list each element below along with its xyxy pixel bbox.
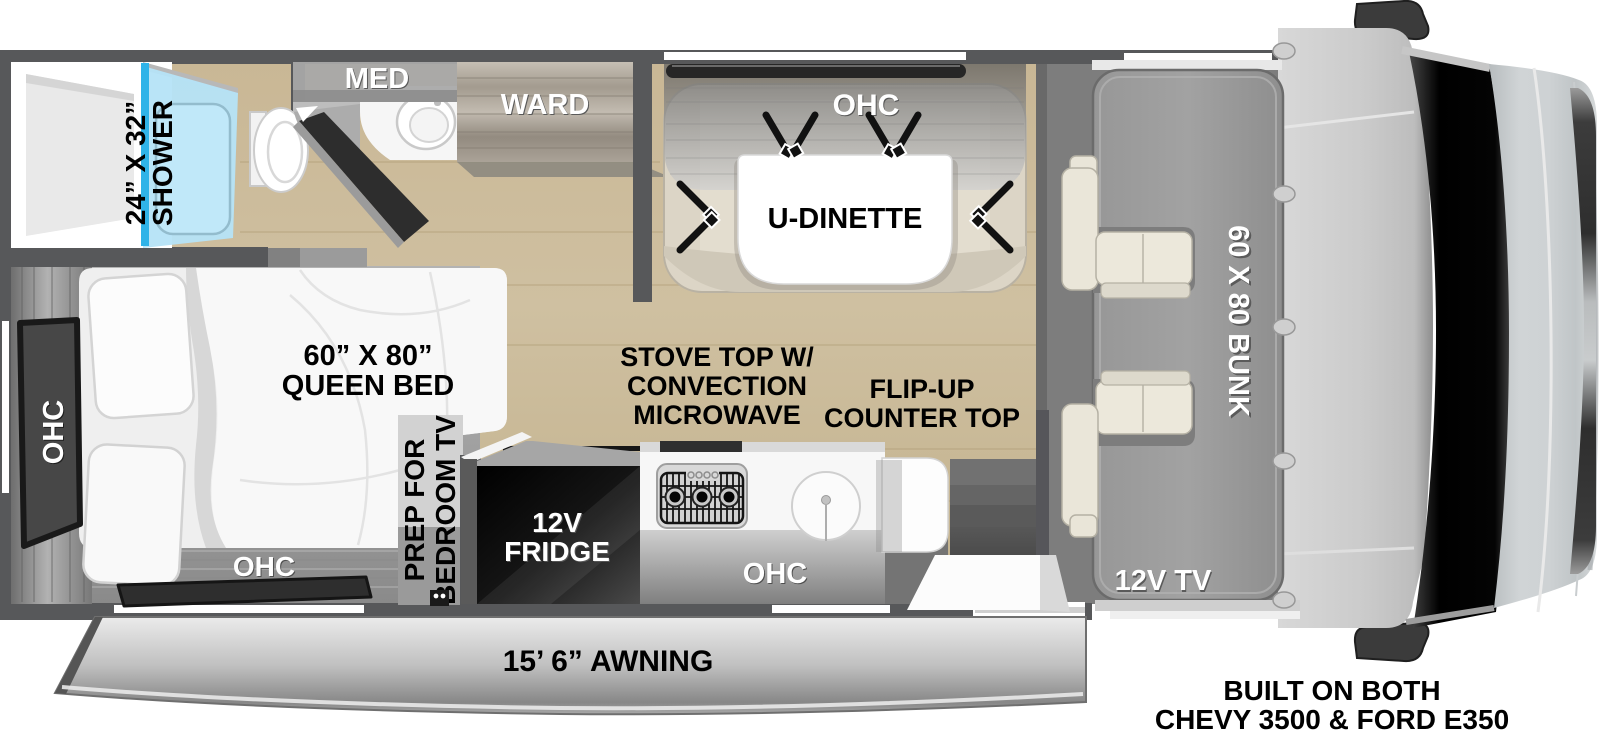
svg-text:CHEVY 3500 & FORD E350: CHEVY 3500 & FORD E350: [1155, 704, 1509, 735]
svg-text:OHC: OHC: [833, 89, 900, 122]
svg-text:FRIDGE: FRIDGE: [504, 536, 610, 567]
svg-text:12V TV: 12V TV: [1115, 565, 1212, 597]
svg-text:MED: MED: [345, 63, 409, 95]
svg-text:QUEEN BED: QUEEN BED: [282, 370, 454, 402]
svg-text:SHOWER: SHOWER: [147, 100, 178, 226]
svg-text:BUILT ON BOTH: BUILT ON BOTH: [1223, 675, 1440, 706]
svg-text:OHC: OHC: [743, 558, 808, 590]
svg-text:STOVE TOP W/: STOVE TOP W/: [620, 342, 814, 372]
svg-text:MICROWAVE: MICROWAVE: [633, 400, 801, 430]
svg-text:OHC: OHC: [233, 551, 295, 582]
svg-text:U-DINETTE: U-DINETTE: [768, 203, 923, 235]
svg-text:PREP FOR: PREP FOR: [399, 439, 430, 582]
svg-text:OHC: OHC: [38, 400, 70, 465]
svg-text:COUNTER TOP: COUNTER TOP: [824, 403, 1020, 433]
svg-text:15’ 6” AWNING: 15’ 6” AWNING: [503, 645, 714, 678]
svg-text:CONVECTION: CONVECTION: [627, 371, 807, 401]
svg-text:12V: 12V: [532, 507, 582, 538]
svg-text:60 X 80 BUNK: 60 X 80 BUNK: [1222, 225, 1254, 417]
svg-text:BEDROOM TV: BEDROOM TV: [430, 415, 461, 605]
svg-text:WARD: WARD: [501, 89, 590, 121]
svg-text:60” X 80”: 60” X 80”: [304, 340, 433, 372]
svg-text:FLIP-UP: FLIP-UP: [870, 374, 975, 404]
